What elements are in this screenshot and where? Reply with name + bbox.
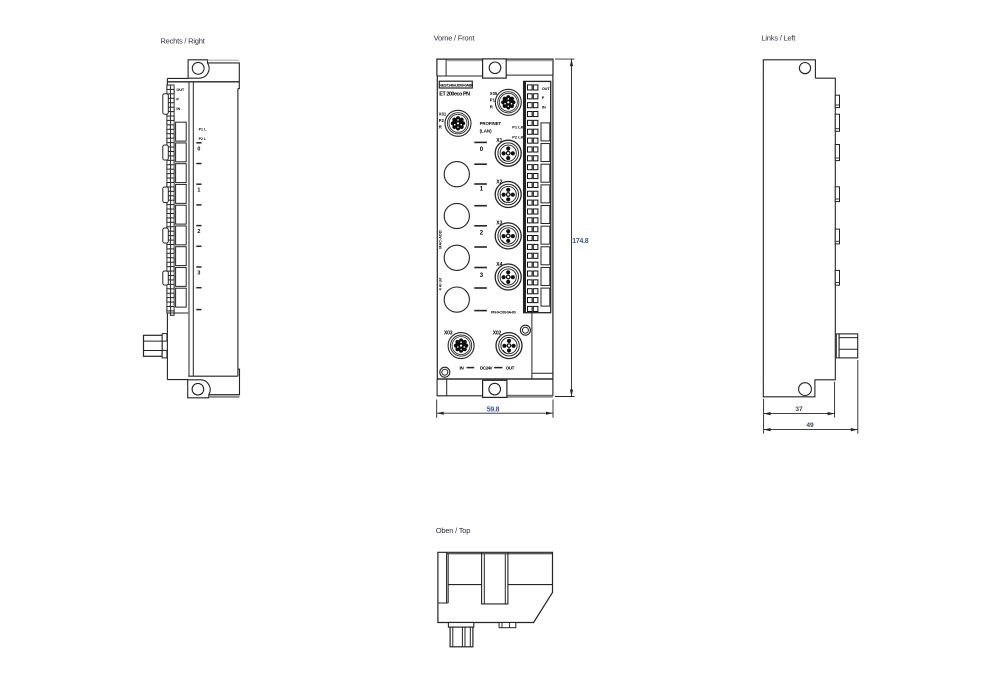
svg-text:Vorne / Front: Vorne / Front <box>434 33 476 42</box>
svg-text:OUT: OUT <box>506 365 515 370</box>
svg-text:P2: P2 <box>439 118 445 123</box>
svg-text:ET 200eco PN: ET 200eco PN <box>439 91 470 97</box>
svg-text:DC24V: DC24V <box>480 365 494 370</box>
svg-text:P1: P1 <box>490 98 496 103</box>
svg-text:R: R <box>439 125 442 130</box>
svg-text:59.8: 59.8 <box>487 407 500 414</box>
svg-text:R: R <box>490 104 493 109</box>
svg-text:PROFINET: PROFINET <box>480 121 502 126</box>
svg-text:4 AI U/I: 4 AI U/I <box>439 278 443 291</box>
svg-text:Oben / Top: Oben / Top <box>436 526 471 535</box>
svg-text:6ES7148-6JD00-0AB0: 6ES7148-6JD00-0AB0 <box>440 83 473 88</box>
svg-text:1: 1 <box>197 188 200 194</box>
svg-text:(LAN): (LAN) <box>480 128 492 133</box>
svg-text:X03: X03 <box>444 330 453 336</box>
svg-text:X01: X01 <box>439 112 447 117</box>
svg-text:X05: X05 <box>490 91 498 96</box>
svg-text:IN: IN <box>176 106 180 111</box>
svg-text:Rechts / Right: Rechts / Right <box>160 37 205 46</box>
svg-text:3: 3 <box>197 270 200 276</box>
svg-text:49: 49 <box>806 422 814 429</box>
svg-text:174.8: 174.8 <box>572 238 588 245</box>
svg-text:P1 L: P1 L <box>199 128 207 132</box>
svg-text:P: P <box>542 95 545 100</box>
svg-text:P2 L: P2 L <box>199 137 207 141</box>
svg-text:P1 LK: P1 LK <box>512 124 523 129</box>
svg-text:37: 37 <box>795 406 803 413</box>
svg-text:PN-0-CX0-0A-00: PN-0-CX0-0A-00 <box>491 310 516 314</box>
svg-text:OUT: OUT <box>176 87 185 92</box>
svg-text:P: P <box>176 97 179 102</box>
svg-text:IN: IN <box>542 104 546 109</box>
svg-text:Links / Left: Links / Left <box>761 34 796 43</box>
svg-text:OUT: OUT <box>542 86 551 91</box>
svg-text:2: 2 <box>197 229 200 235</box>
svg-text:P2 LK: P2 LK <box>512 134 523 139</box>
svg-text:0: 0 <box>197 147 200 153</box>
svg-text:MAC-ADD:: MAC-ADD: <box>439 229 443 248</box>
